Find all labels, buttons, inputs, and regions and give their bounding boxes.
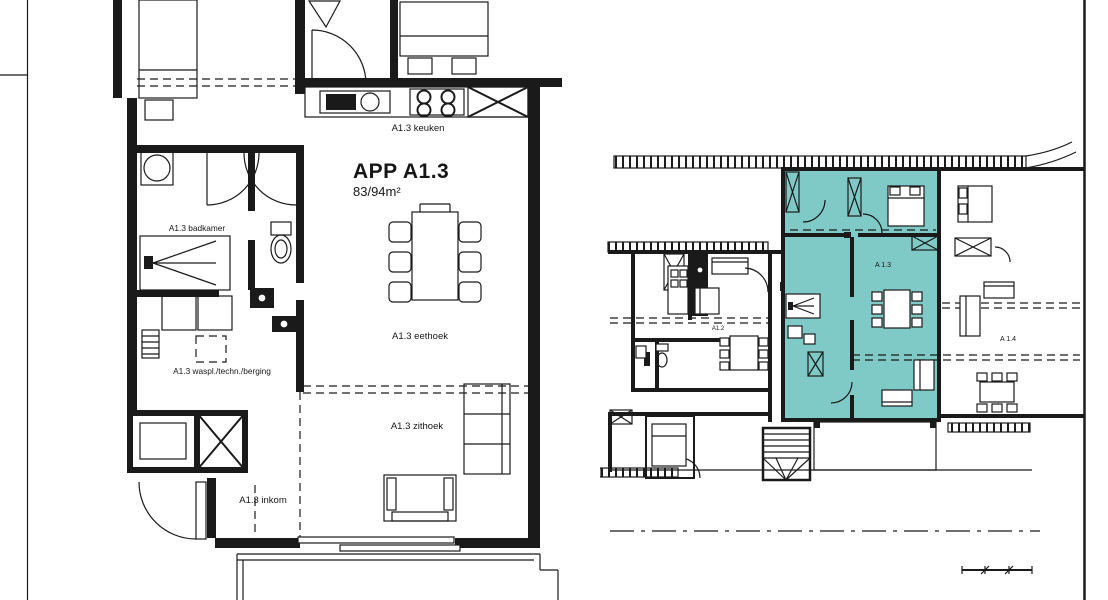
entry-storage xyxy=(130,413,197,470)
sofa-group xyxy=(384,384,510,521)
floor-plan-sheet: A1.3 keuken APP A1.3 83/94m² A1.3 badkam… xyxy=(0,0,1108,600)
detail-plan: A1.3 keuken APP A1.3 83/94m² A1.3 badkam… xyxy=(0,0,600,600)
room-label-kitchen: A1.3 keuken xyxy=(392,123,445,134)
bedroom-left xyxy=(139,0,197,120)
room-label-dining: A1.3 eethoek xyxy=(392,331,448,342)
unit-area: 83/94m² xyxy=(353,184,401,199)
entry-door xyxy=(139,482,206,539)
bathroom xyxy=(140,151,296,290)
overview-unit-label-right: A 1.4 xyxy=(1000,336,1016,343)
sliding-door xyxy=(298,537,460,551)
overview-plan: A 1.3 A1.2 A 1.4 xyxy=(600,0,1108,600)
bedroom-top xyxy=(309,1,488,84)
overview-unit-label-left: A1.2 xyxy=(712,326,725,332)
unit-title: APP A1.3 xyxy=(353,160,449,183)
room-label-bathroom: A1.3 badkamer xyxy=(169,223,226,233)
scale-bar xyxy=(962,566,1032,574)
right-unit-furniture xyxy=(958,186,1017,412)
stairwell xyxy=(763,428,810,480)
storage-room xyxy=(142,288,296,362)
room-label-entrance: A1.3 inkom xyxy=(239,495,287,506)
elevator-shaft xyxy=(197,413,245,470)
sheet-border-left xyxy=(0,0,28,600)
kitchen-counter xyxy=(305,87,528,117)
dining-table xyxy=(389,204,481,302)
terrace xyxy=(237,554,558,600)
room-label-storage: A1.3 waspl./techn./berging xyxy=(173,366,271,376)
room-label-living: A1.3 zithoek xyxy=(391,421,444,432)
overview-unit-label-highlighted: A 1.3 xyxy=(875,262,891,269)
